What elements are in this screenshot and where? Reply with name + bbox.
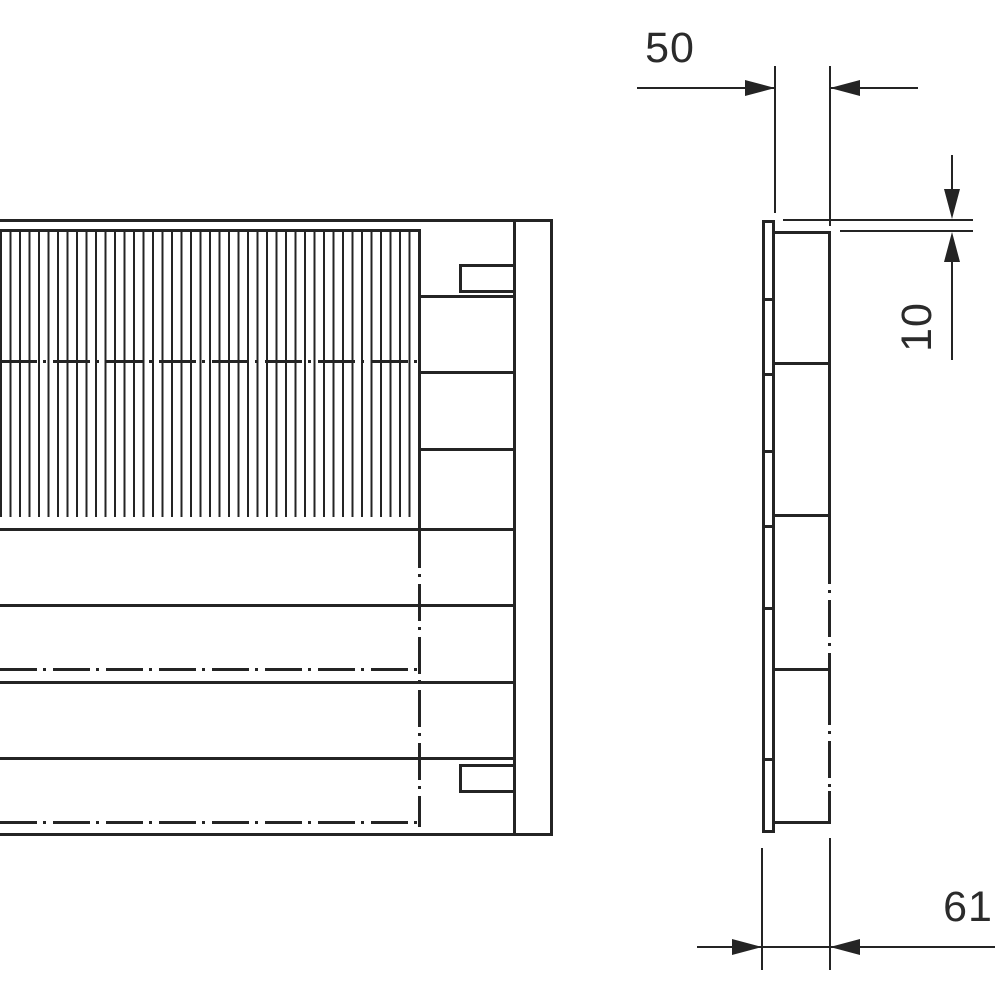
front-horizontal-line (0, 604, 516, 607)
plate-division (762, 450, 775, 453)
column-line (418, 371, 516, 374)
body-division (775, 668, 831, 671)
lower-centerline (0, 668, 420, 671)
body-division (775, 362, 831, 365)
arrowhead-right-icon (732, 939, 762, 955)
body-bottom-edge (775, 821, 831, 824)
top-tab (459, 264, 516, 293)
body-top-edge (775, 231, 831, 234)
dim-label-10: 10 (896, 295, 940, 359)
vertical-centerline (418, 531, 421, 827)
front-horizontal-line (0, 528, 516, 531)
plate-division (762, 525, 775, 528)
lower-centerline (0, 821, 420, 824)
plate-division (762, 758, 775, 761)
column-line (418, 295, 516, 298)
body-right-edge (828, 231, 831, 547)
arrowhead-right-icon (745, 80, 775, 96)
body-division (775, 514, 831, 517)
body-right-edge-hidden (828, 547, 831, 653)
dimension-line (951, 262, 953, 360)
body-right-edge-hidden (828, 688, 831, 791)
plate-bottom-cap (762, 830, 775, 833)
dimension-line (951, 155, 953, 190)
front-top-edge (0, 219, 553, 222)
front-horizontal-line (0, 757, 516, 760)
plate-division (762, 607, 775, 610)
dim-label-61: 61 (928, 886, 1000, 929)
reference-line (783, 219, 973, 221)
arrowhead-left-icon (830, 80, 860, 96)
arrowhead-up-icon (944, 232, 960, 262)
front-bottom-edge (0, 833, 553, 836)
plate-division (762, 298, 775, 301)
body-right-edge (828, 653, 831, 688)
front-inner-vertical (513, 219, 516, 836)
bottom-tab (459, 764, 516, 793)
fin-area (0, 231, 418, 517)
front-horizontal-line (0, 681, 516, 684)
body-right-edge (828, 791, 831, 824)
plate-top-cap (762, 220, 775, 223)
fin-right-boundary (418, 229, 421, 530)
dim-label-50: 50 (630, 27, 710, 70)
fin-centerline (0, 360, 420, 363)
column-line (418, 448, 516, 451)
front-outer-right-edge (550, 219, 553, 836)
drawing-canvas: 50 10 61 (0, 0, 1000, 1000)
arrowhead-left-icon (830, 939, 860, 955)
arrowhead-down-icon (944, 189, 960, 219)
plate-division (762, 373, 775, 376)
